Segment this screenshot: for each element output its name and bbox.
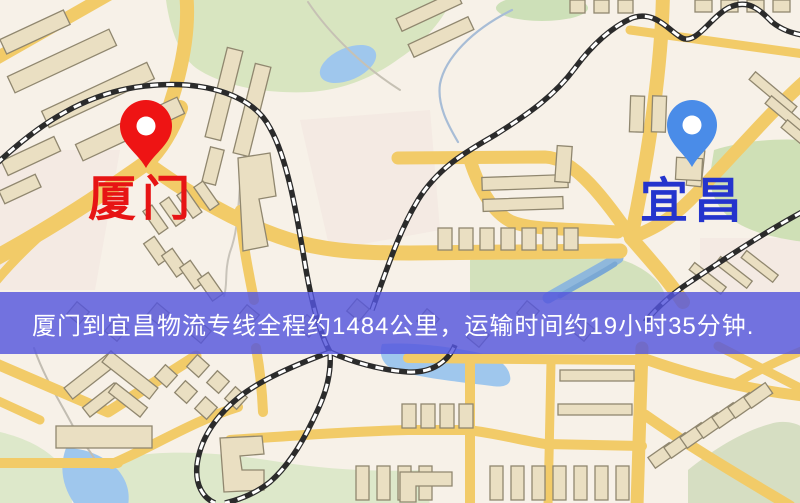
- route-info-text: 厦门到宜昌物流专线全程约1484公里，运输时间约19小时35分钟.: [0, 306, 754, 341]
- origin-city-label: 厦门: [88, 176, 196, 224]
- destination-city-label: 宜昌: [640, 178, 748, 226]
- page: 厦门 宜昌 厦门到宜昌物流专线全程约1484公里，运输时间约19小时35分钟.: [0, 0, 800, 503]
- destination-pin-hole: [683, 116, 702, 135]
- origin-pin-hole: [137, 117, 156, 136]
- route-info-banner: 厦门到宜昌物流专线全程约1484公里，运输时间约19小时35分钟.: [0, 292, 800, 354]
- map-image: [0, 0, 800, 503]
